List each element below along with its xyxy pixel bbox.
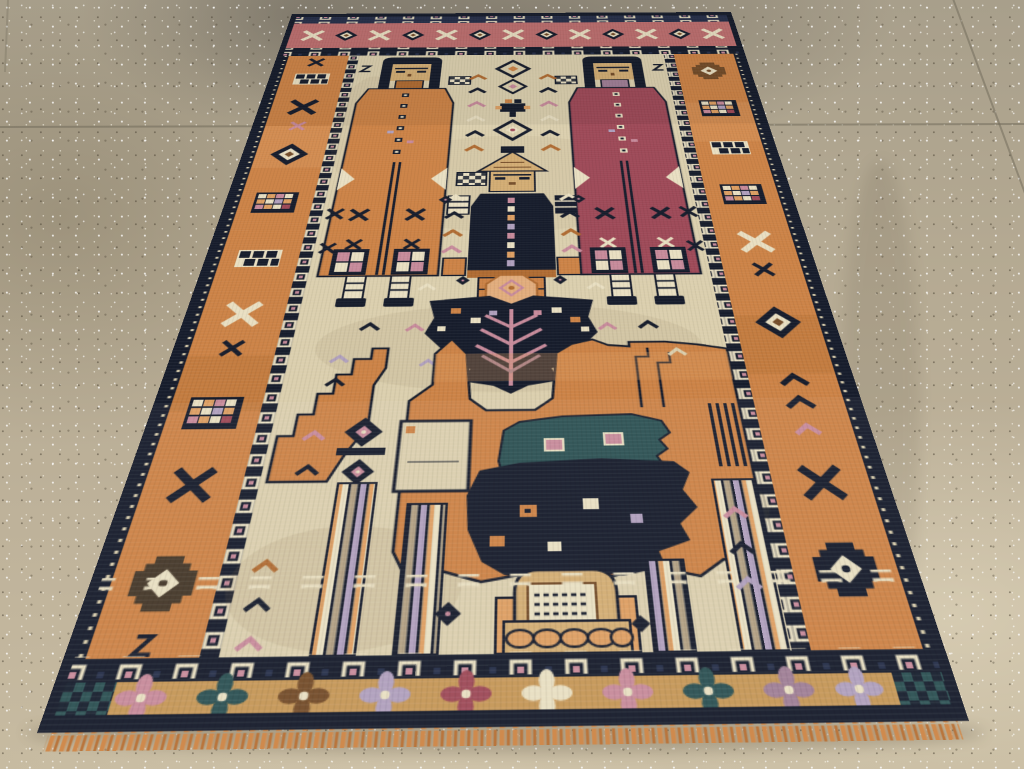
photo-scene (0, 0, 1024, 769)
grout-line-left-edge (5, 0, 8, 72)
grout-line-diagonal (952, 0, 1024, 196)
